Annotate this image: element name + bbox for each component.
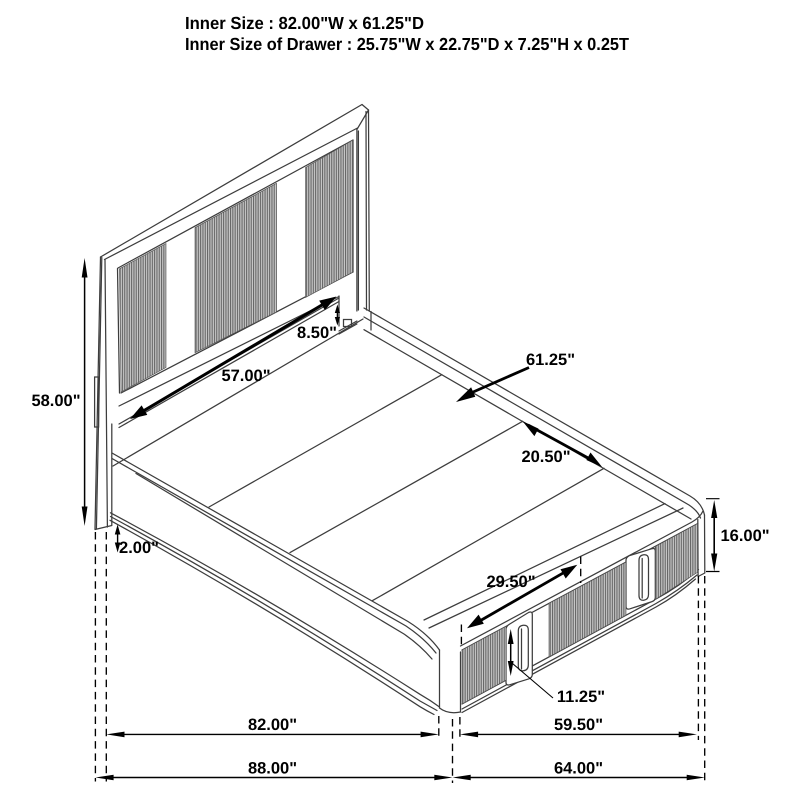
svg-text:61.25": 61.25" bbox=[526, 351, 575, 369]
svg-text:64.00": 64.00" bbox=[554, 760, 603, 778]
svg-text:57.00": 57.00" bbox=[221, 367, 270, 385]
svg-text:58.00": 58.00" bbox=[31, 392, 80, 410]
svg-text:Inner Size of Drawer : 25.75"W: Inner Size of Drawer : 25.75"W x 22.75"D… bbox=[185, 34, 629, 54]
svg-text:Inner Size : 82.00"W x 61.25"D: Inner Size : 82.00"W x 61.25"D bbox=[185, 13, 424, 33]
svg-text:29.50": 29.50" bbox=[486, 573, 535, 591]
svg-text:59.50": 59.50" bbox=[554, 716, 603, 734]
svg-text:20.50": 20.50" bbox=[521, 448, 570, 466]
svg-text:8.50": 8.50" bbox=[297, 324, 337, 342]
svg-text:16.00": 16.00" bbox=[721, 527, 770, 545]
svg-text:11.25": 11.25" bbox=[557, 688, 605, 706]
svg-text:2.00": 2.00" bbox=[119, 539, 159, 557]
svg-text:82.00": 82.00" bbox=[248, 716, 297, 734]
svg-text:88.00": 88.00" bbox=[248, 760, 297, 778]
